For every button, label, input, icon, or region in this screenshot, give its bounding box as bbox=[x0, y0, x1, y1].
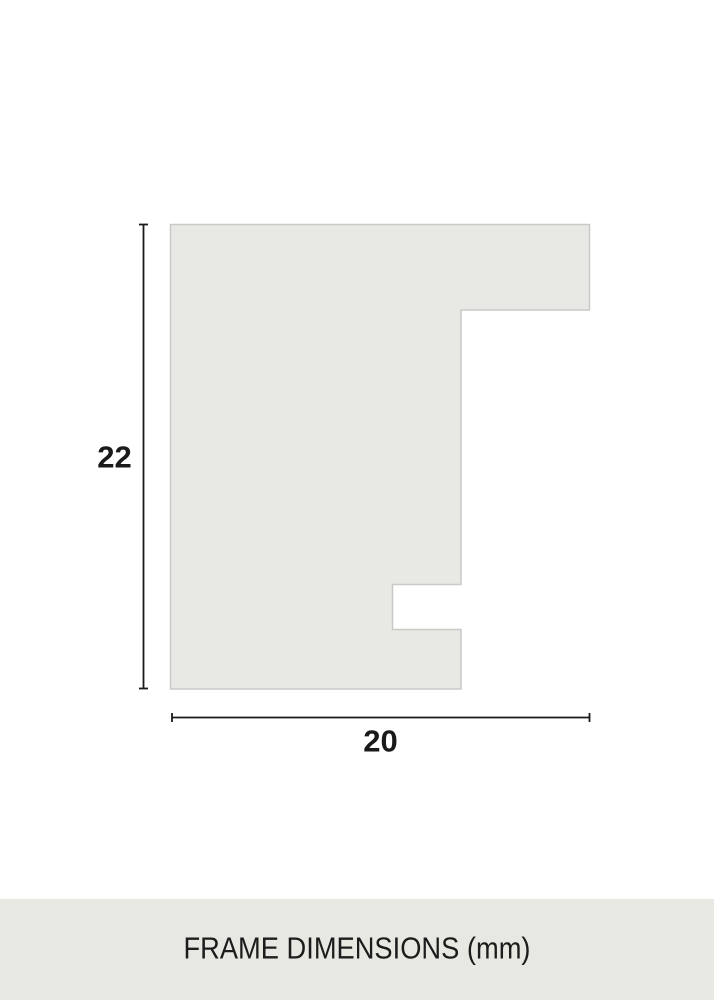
svg-text:FRAME DIMENSIONS (mm): FRAME DIMENSIONS (mm) bbox=[184, 931, 531, 966]
svg-text:22: 22 bbox=[97, 440, 131, 475]
svg-text:20: 20 bbox=[363, 724, 397, 759]
